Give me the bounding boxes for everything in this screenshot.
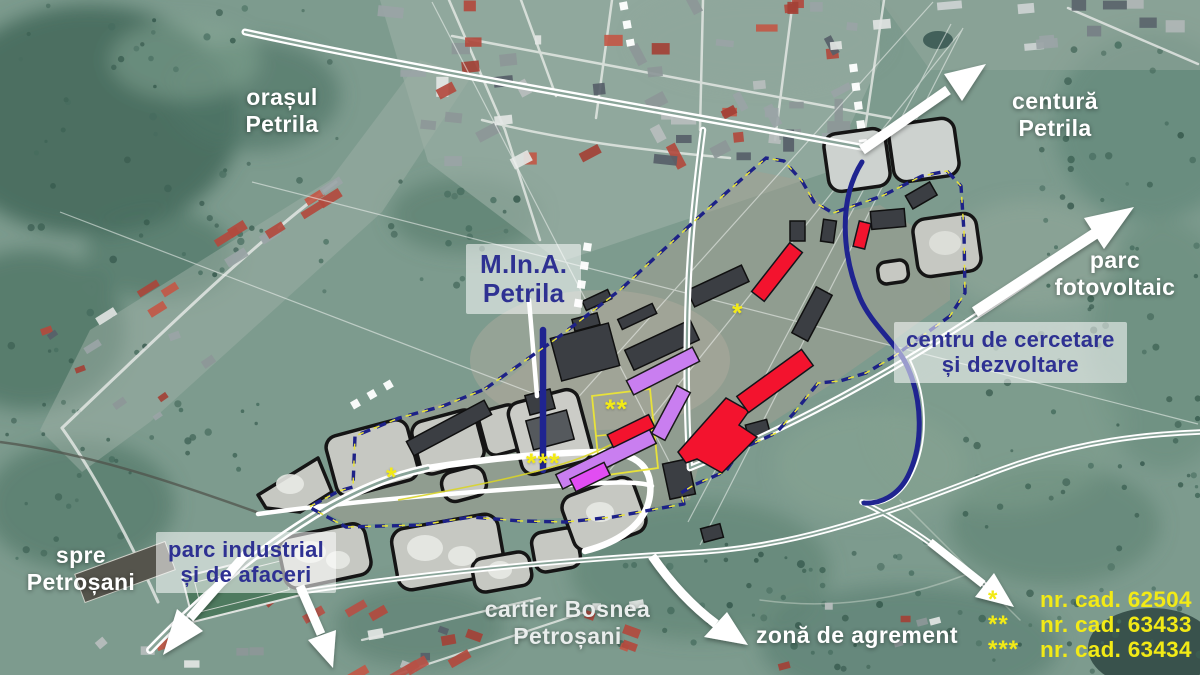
label-parcind-line2: și de afaceri [168,563,324,588]
label-zona-agrement: zonă de agrement [756,622,958,649]
label-cartier-bosnea: cartier Bosnea Petroșani [475,596,660,650]
legend-marker-1: * [988,586,1040,614]
label-fotovoltaic-line1: parc [1035,247,1195,274]
legend-row: *** nr. cad. 63434 [988,636,1192,661]
marker-triple-star: *** [526,448,561,479]
label-mina-petrila: M.In.A. Petrila [466,244,581,314]
label-centru-line1: centru de cercetare [906,328,1115,353]
legend-label-1: nr. cad. 62504 [1040,587,1192,613]
label-mina-line2: Petrila [480,279,567,308]
legend-row: * nr. cad. 62504 [988,586,1192,611]
label-orasul-line1: orașul [222,84,342,111]
legend-marker-3: *** [988,636,1040,664]
label-centru-cercetare: centru de cercetare și dezvoltare [894,322,1127,383]
label-fotovoltaic-line2: fotovoltaic [1035,274,1195,301]
legend: * nr. cad. 62504 ** nr. cad. 63433 *** n… [988,586,1192,661]
label-orasul-petrila: orașul Petrila [222,84,342,138]
label-centura-line1: centură [980,88,1130,115]
label-spre-line1: spre [16,542,146,569]
marker-star-2: * [386,462,398,493]
marker-double-star: ** [605,394,628,425]
legend-label-2: nr. cad. 63433 [1040,612,1192,638]
legend-label-3: nr. cad. 63434 [1040,637,1192,663]
label-spre-petrosani: spre Petroșani [16,542,146,596]
label-centura-line2: Petrila [980,115,1130,142]
label-mina-line1: M.In.A. [480,250,567,279]
label-orasul-line2: Petrila [222,111,342,138]
legend-marker-2: ** [988,611,1040,639]
map-canvas: orașul Petrila centură Petrila parc foto… [0,0,1200,675]
label-cartier-line1: cartier Bosnea [475,596,660,623]
label-parc-industrial: parc industrial și de afaceri [156,532,336,593]
label-zona-line1: zonă de agrement [756,622,958,649]
label-parc-fotovoltaic: parc fotovoltaic [1035,247,1195,301]
label-parcind-line1: parc industrial [168,538,324,563]
label-spre-line2: Petroșani [16,569,146,596]
label-centura-petrila: centură Petrila [980,88,1130,142]
marker-star-1: * [732,298,744,329]
label-centru-line2: și dezvoltare [906,353,1115,378]
legend-row: ** nr. cad. 63433 [988,611,1192,636]
label-cartier-line2: Petroșani [475,623,660,650]
